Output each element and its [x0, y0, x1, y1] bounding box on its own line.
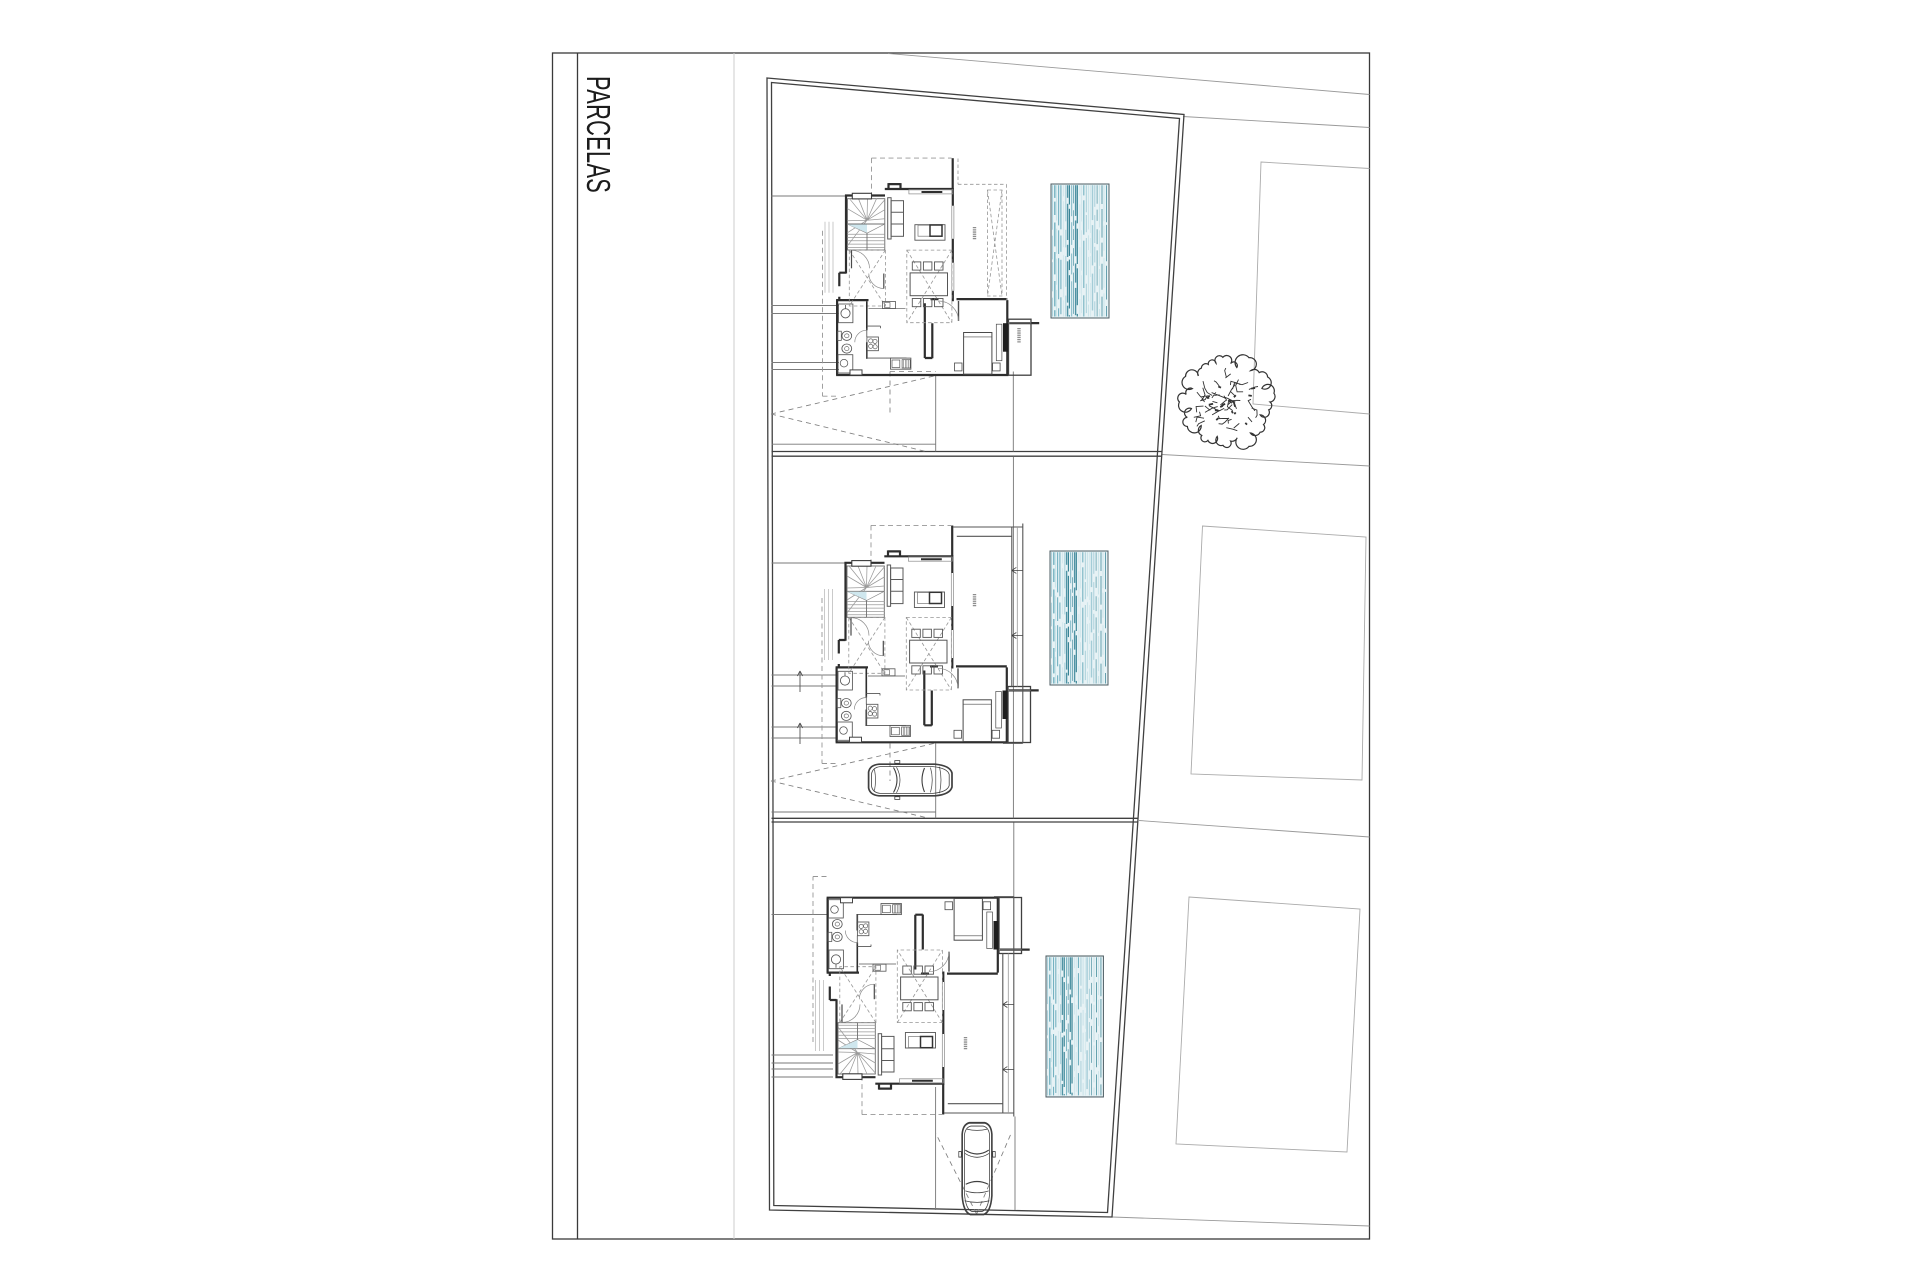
- svg-text:PARCELAS: PARCELAS: [580, 76, 618, 193]
